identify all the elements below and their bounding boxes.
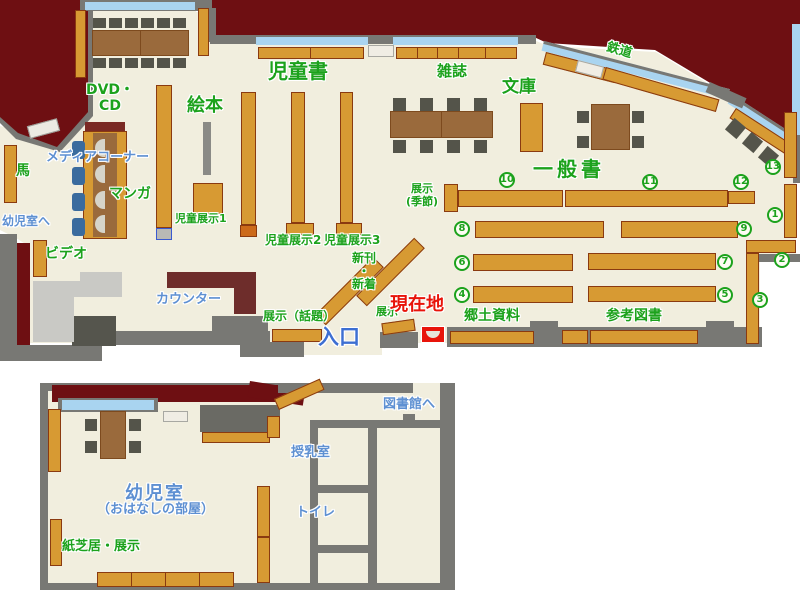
closed-stacks-area: [17, 243, 30, 345]
label-current-location: 現在地: [390, 295, 444, 316]
shelf-number-6: 6: [454, 255, 470, 271]
shelf-number-3: 3: [752, 292, 768, 308]
bookshelf: [48, 409, 61, 472]
bookshelf: [198, 8, 209, 56]
bookshelf: [75, 10, 86, 78]
book-return-area: [33, 281, 74, 342]
shelf-number-9: 9: [736, 221, 752, 237]
label-seasonal-exhibit: 展示 (季節): [400, 183, 444, 208]
chair: [129, 441, 141, 453]
window: [62, 400, 154, 410]
bookshelf: [784, 112, 797, 178]
current-location-marker: [421, 326, 445, 343]
chair: [173, 18, 186, 28]
label-general-books: 一般書: [533, 158, 605, 181]
shelf-number-10: 10: [499, 172, 515, 188]
bookshelf: [520, 103, 543, 152]
label-media-corner: メディアコーナー: [46, 151, 149, 166]
display-case: [368, 45, 394, 57]
label-new-arrivals: 新刊 ・ 新着: [335, 252, 393, 292]
bookshelf: [165, 572, 200, 587]
chair: [141, 18, 154, 28]
chair: [157, 58, 170, 68]
pillar: [72, 316, 116, 346]
bookshelf: [241, 92, 256, 225]
bookshelf: [588, 253, 716, 270]
label-toilet: トイレ: [296, 506, 335, 521]
bookshelf: [746, 240, 796, 253]
chair: [109, 58, 122, 68]
display-stand: [193, 183, 223, 214]
media-chair: [72, 218, 85, 236]
bookshelf: [458, 47, 486, 59]
media-chair: [72, 193, 85, 211]
wall: [0, 345, 102, 361]
current-location-symbol: [426, 331, 440, 338]
bookshelf: [485, 47, 517, 59]
chair: [393, 98, 406, 111]
chair: [157, 18, 170, 28]
label-to-library: 図書館へ: [383, 398, 435, 413]
bookshelf: [450, 331, 534, 344]
label-entrance: 入口: [318, 325, 360, 349]
chair: [93, 58, 106, 68]
label-nursing-room: 授乳室: [291, 446, 330, 461]
shelf-number-11: 11: [642, 174, 658, 190]
chair: [125, 18, 138, 28]
chair: [577, 111, 589, 123]
window: [393, 37, 518, 45]
label-picture-books: 絵本: [187, 96, 223, 117]
bookshelf: [621, 221, 738, 238]
media-chair: [72, 167, 85, 185]
bookshelf: [417, 47, 438, 59]
bookshelf: [258, 47, 311, 59]
label-kamishibai-exhibit: 紙芝居・展示: [62, 540, 140, 555]
bookshelf: [458, 190, 563, 207]
label-local-materials: 郷土資料: [464, 308, 520, 324]
shelf-number-12: 12: [733, 174, 749, 190]
chair: [447, 140, 460, 153]
shelf-number-5: 5: [717, 287, 733, 303]
bookshelf: [396, 47, 418, 59]
shelf-number-8: 8: [454, 221, 470, 237]
label-video: ビデオ: [45, 246, 87, 262]
bookshelf: [272, 329, 322, 342]
label-topical-exhibit: 展示（話題）: [263, 310, 335, 324]
display-stand: [444, 184, 458, 212]
bookshelf: [156, 85, 172, 228]
bookshelf: [562, 330, 588, 344]
display-case: [163, 411, 188, 422]
chair: [85, 419, 97, 431]
chair: [141, 58, 154, 68]
label-childrens-exhibit-1: 児童展示1: [175, 213, 227, 226]
label-dvd-cd: DVD・ CD: [84, 82, 136, 114]
table-divider: [140, 31, 141, 55]
pillar: [706, 321, 734, 347]
room-wall: [310, 485, 377, 493]
chair: [93, 18, 106, 28]
kiosk: [156, 228, 172, 240]
chair: [173, 58, 186, 68]
shelf-number-13: 13: [765, 159, 781, 175]
bookshelf: [257, 486, 270, 537]
chair: [447, 98, 460, 111]
bookshelf: [728, 191, 755, 204]
chair: [109, 18, 122, 28]
bookshelf: [784, 184, 797, 238]
bookshelf: [202, 432, 270, 443]
label-magazines: 雑誌: [437, 63, 467, 80]
label-infant-room-note: （おはなしの部屋）: [97, 503, 214, 518]
bookshelf: [199, 572, 234, 587]
pillar: [530, 321, 558, 347]
label-childrens-books: 児童書: [268, 60, 328, 83]
service-counter: [234, 272, 256, 314]
label-reference-books: 参考図書: [606, 308, 662, 324]
bookshelf: [565, 190, 728, 207]
chair: [632, 136, 644, 148]
bookshelf: [590, 330, 698, 344]
bookshelf: [97, 572, 132, 587]
bookshelf: [340, 92, 353, 223]
shelf-end: [240, 225, 257, 237]
shelf-number-7: 7: [717, 254, 733, 270]
bookshelf: [437, 47, 459, 59]
wall: [0, 234, 17, 360]
shelf-number-2: 2: [774, 252, 790, 268]
bookshelf: [588, 286, 716, 302]
chair: [474, 140, 487, 153]
shelf-number-1: 1: [767, 207, 783, 223]
bookshelf: [267, 416, 280, 438]
label-counter: カウンター: [156, 293, 221, 308]
label-childrens-exhibit-3: 児童展示3: [324, 234, 380, 248]
label-childrens-exhibit-2: 児童展示2: [265, 234, 321, 248]
picture-book-display: [203, 122, 211, 175]
wall: [212, 316, 268, 331]
label-manga: マンガ: [109, 186, 151, 202]
bookshelf: [50, 519, 62, 566]
reading-table: [100, 411, 126, 459]
chair: [474, 98, 487, 111]
bookshelf: [475, 221, 604, 238]
reading-table: [591, 104, 630, 150]
chair: [393, 140, 406, 153]
room-wall: [310, 545, 377, 553]
bookshelf: [131, 572, 166, 587]
bookshelf: [291, 92, 305, 223]
chair: [420, 98, 433, 111]
chair: [85, 441, 97, 453]
chair: [577, 136, 589, 148]
chair: [125, 58, 138, 68]
label-bunko: 文庫: [502, 78, 536, 98]
room-wall: [368, 420, 377, 583]
label-to-infant-room: 幼児室へ: [2, 215, 50, 229]
wall: [240, 342, 304, 357]
label-horse: 馬: [16, 163, 30, 179]
window: [85, 2, 195, 10]
bookshelf: [473, 286, 573, 303]
chair: [129, 419, 141, 431]
chair: [420, 140, 433, 153]
window: [256, 37, 368, 45]
shelf-number-4: 4: [454, 287, 470, 303]
bookshelf: [257, 537, 270, 583]
bookshelf: [310, 47, 364, 59]
library-floor-map: 児童書 絵本 雑誌 文庫 一般書 鉄道 DVD・ CD マンガ 馬 ビデオ 郷土…: [0, 0, 800, 590]
bookshelf: [473, 254, 573, 271]
table-divider: [441, 112, 442, 137]
chair: [632, 111, 644, 123]
